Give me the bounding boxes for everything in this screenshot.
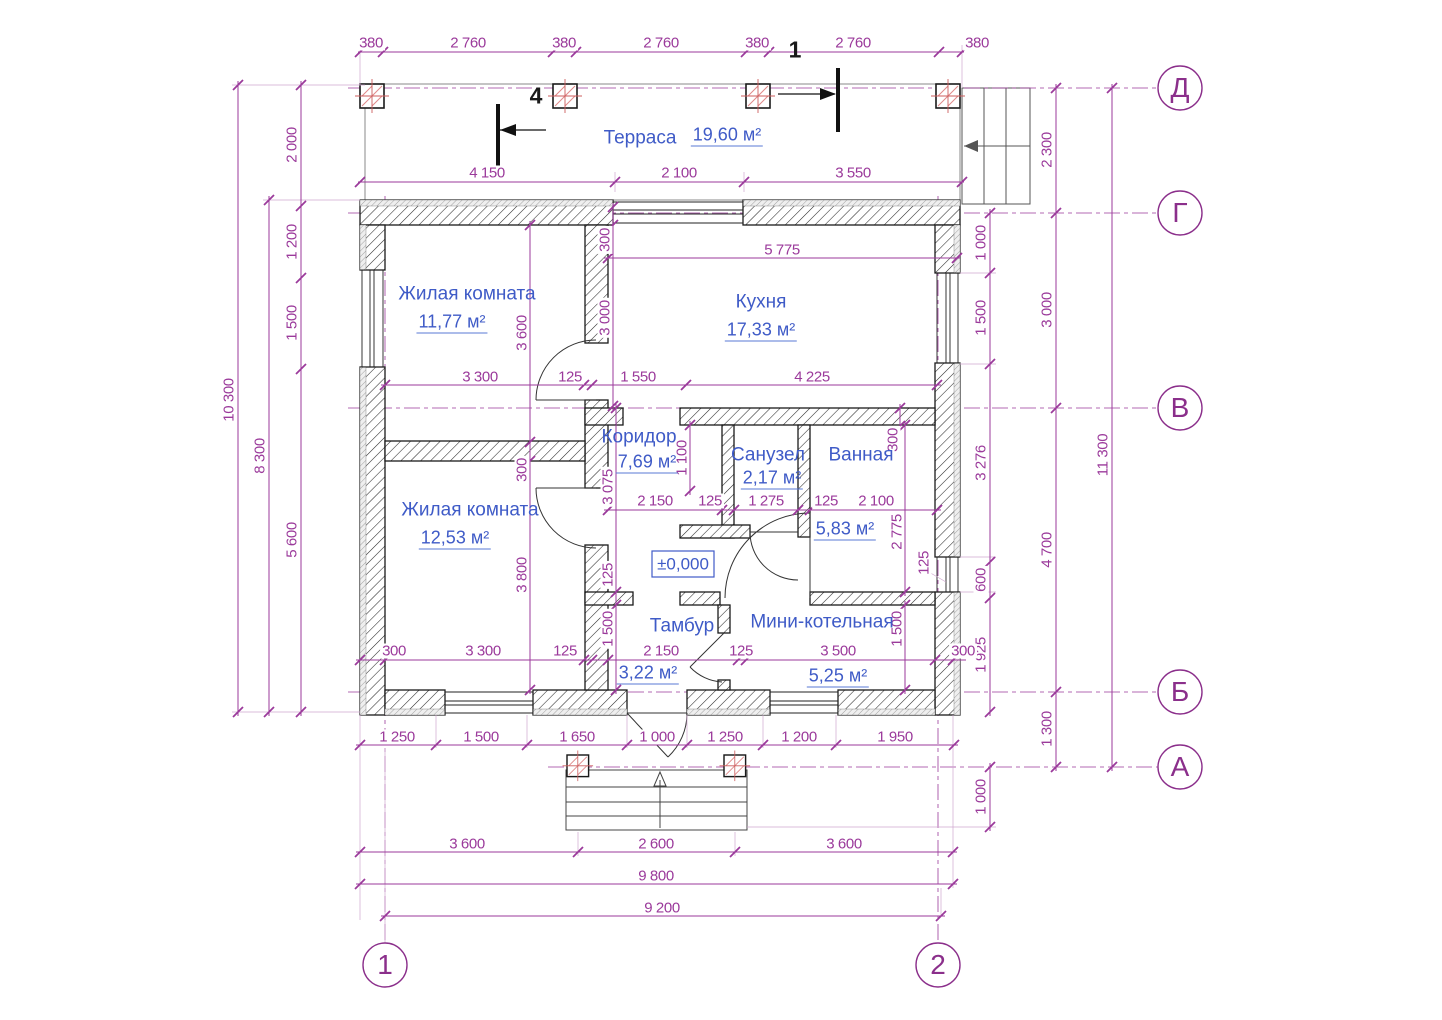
dimension-label: 1 950 (875, 730, 915, 745)
axis-label: В (1171, 394, 1190, 422)
room-name-label: Коридор (601, 428, 676, 447)
dimension-label: 600 (974, 566, 989, 594)
dimension-label: 125 (556, 370, 584, 385)
dimension-label: 5 600 (285, 520, 300, 560)
dimension-label: 3 075 (601, 467, 616, 507)
dimension-label: 300 (598, 226, 613, 254)
room-area-label: 7,69 м² (616, 453, 678, 474)
dimension-label: 300 (949, 644, 977, 659)
dimension-label: 2 760 (833, 36, 873, 51)
axis-label: 2 (930, 951, 946, 979)
dimension-label: 1 000 (974, 223, 989, 263)
dimension-label: 3 300 (460, 370, 500, 385)
room-area-label: 2,17 м² (741, 469, 803, 490)
axis-label: Д (1171, 74, 1190, 102)
dimension-label: 8 300 (253, 436, 268, 476)
dimension-label: 4 700 (1040, 530, 1055, 570)
dimension-label: 3 550 (833, 166, 873, 181)
dimension-label: 2 150 (641, 644, 681, 659)
dimension-label: 3 500 (818, 644, 858, 659)
dimension-label: 9 800 (636, 869, 676, 884)
axis-label: 1 (377, 951, 393, 979)
axis-label: Г (1172, 199, 1187, 227)
dimension-label: 2 100 (856, 494, 896, 509)
dimension-label: 11 300 (1096, 432, 1111, 478)
dimension-label: 1 200 (779, 730, 819, 745)
dimension-label: 1 000 (974, 777, 989, 817)
dimension-label: 4 225 (792, 370, 832, 385)
dimension-label: 3 276 (974, 443, 989, 483)
dimension-label: 2 300 (1040, 130, 1055, 170)
room-area-label: 5,25 м² (807, 667, 869, 688)
dimension-label: 380 (550, 36, 578, 51)
dimension-label: 3 600 (515, 313, 530, 353)
dimension-label: 1 200 (285, 222, 300, 262)
dimension-label: 125 (601, 561, 616, 589)
dimension-label: 125 (727, 644, 755, 659)
dimension-label: 125 (917, 549, 932, 577)
dimension-label: 125 (696, 494, 724, 509)
room-name-label: Тамбур (650, 617, 715, 636)
dimension-label: 2 150 (635, 494, 675, 509)
room-area-label: 3,22 м² (617, 664, 679, 685)
dimension-label: 380 (743, 36, 771, 51)
room-area-label: 12,53 м² (419, 529, 491, 550)
room-name-label: Жилая комната (401, 501, 538, 520)
dimension-label: 125 (812, 494, 840, 509)
room-area-label: 19,60 м² (691, 126, 763, 147)
dimension-label: 3 000 (1040, 290, 1055, 330)
axis-label: Б (1171, 678, 1189, 706)
dimension-label: 4 150 (467, 166, 507, 181)
dimension-label: 2 760 (448, 36, 488, 51)
dimension-label: 5 775 (762, 243, 802, 258)
label-layer: 3802 7603802 7603802 7603804 1502 1003 5… (0, 0, 1442, 1020)
dimension-label: 3 800 (515, 555, 530, 595)
dimension-label: 300 (380, 644, 408, 659)
room-name-label: Санузел (731, 446, 805, 465)
dimension-label: 1 550 (618, 370, 658, 385)
dimension-label: 3 600 (447, 837, 487, 852)
dimension-label: 2 600 (636, 837, 676, 852)
dimension-label: 300 (515, 456, 530, 484)
dimension-label: 10 300 (222, 376, 237, 423)
axis-label: А (1171, 753, 1190, 781)
dimension-label: 9 200 (642, 901, 682, 916)
dimension-label: 1 300 (1040, 709, 1055, 749)
room-name-label: Мини-котельная (750, 613, 893, 632)
dimension-label: 2 100 (659, 166, 699, 181)
dimension-label: 380 (357, 36, 385, 51)
dimension-label: 1 250 (377, 730, 417, 745)
dimension-label: 380 (963, 36, 991, 51)
room-name-label: Кухня (736, 293, 787, 312)
floor-plan-drawing: 3802 7603802 7603802 7603804 1502 1003 5… (0, 0, 1442, 1020)
dimension-label: 3 600 (824, 837, 864, 852)
room-name-label: Ванная (828, 446, 893, 465)
dimension-label: 3 000 (598, 298, 613, 338)
dimension-label: 2 760 (641, 36, 681, 51)
level-mark: ±0,000 (657, 556, 709, 573)
dimension-label: 1 500 (974, 298, 989, 338)
room-name-label: Терраса (604, 129, 677, 148)
dimension-label: 2 775 (890, 512, 905, 552)
room-area-label: 17,33 м² (725, 321, 797, 342)
room-area-label: 11,77 м² (416, 313, 487, 334)
dimension-label: 1 275 (746, 494, 786, 509)
room-name-label: Жилая комната (398, 285, 535, 304)
section-label: 4 (530, 85, 543, 108)
dimension-label: 1 000 (637, 730, 677, 745)
section-label: 1 (789, 39, 802, 62)
dimension-label: 2 000 (285, 125, 300, 165)
room-area-label: 5,83 м² (814, 520, 876, 541)
dimension-label: 125 (551, 644, 579, 659)
dimension-label: 1 500 (601, 609, 616, 649)
dimension-label: 3 300 (463, 644, 503, 659)
dimension-label: 1 250 (705, 730, 745, 745)
dimension-label: 1 500 (285, 303, 300, 343)
dimension-label: 1 500 (461, 730, 501, 745)
dimension-label: 1 650 (557, 730, 597, 745)
